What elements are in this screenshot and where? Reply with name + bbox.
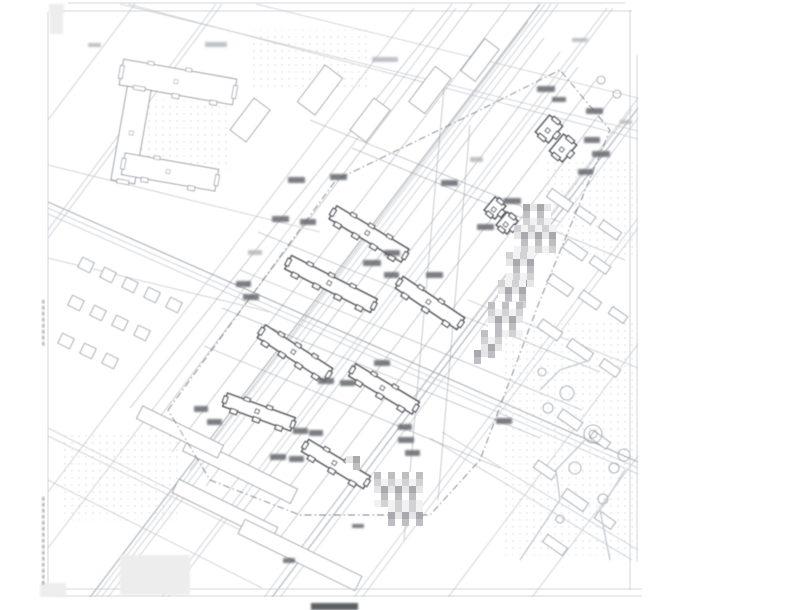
illegible-label-chip-light [372,57,398,62]
margin-micro-text [42,533,45,537]
margin-micro-text [42,521,45,525]
margin-micro-text [42,503,45,507]
illegible-label-chip [293,428,308,434]
illegible-label-chip [398,424,412,430]
illegible-label-chip [537,86,555,92]
illegible-label-chip [477,224,494,230]
margin-micro-text [42,342,45,346]
illegible-label-chip [384,272,399,278]
illegible-label-chip [384,250,400,256]
illegible-label-chip [578,169,593,175]
illegible-label-chip [441,180,458,186]
margin-micro-text [42,312,45,316]
margin-micro-text [42,324,45,328]
margin-micro-text [42,563,45,567]
site-plan-drawing [0,0,800,610]
screenshot-root [0,0,800,610]
illegible-label-chip [270,454,286,460]
illegible-label-chip-light [470,157,483,162]
margin-micro-text [42,581,45,585]
illegible-label-chip-light [248,250,262,255]
illegible-label-chip-light [572,38,588,42]
margin-micro-text [42,318,45,322]
illegible-label-chip [504,198,521,204]
illegible-label-chip [363,260,381,266]
illegible-label-chip [300,219,316,225]
illegible-label-chip [318,378,334,384]
margin-micro-text [42,336,45,340]
margin-micro-text [42,515,45,519]
margin-micro-text [42,575,45,579]
illegible-label-chip [496,418,512,424]
illegible-label-chip [236,281,251,287]
illegible-label-chip-light [88,43,101,47]
illegible-label-chip [194,406,208,412]
illegible-label-chip [352,524,364,528]
illegible-label-chip [330,174,347,180]
illegible-label-chip [340,380,355,386]
illegible-label-chip [592,151,610,157]
margin-micro-text [42,527,45,531]
margin-micro-text [42,539,45,543]
margin-micro-text [42,569,45,573]
illegible-label-chip [309,430,323,436]
illegible-label-chip [288,177,305,183]
margin-micro-text [42,551,45,555]
illegible-label-chip [586,108,603,114]
margin-micro-text [42,557,45,561]
illegible-label-chip [426,272,443,278]
margin-micro-text [42,306,45,310]
margin-micro-text [42,509,45,513]
drawing-title-chip [311,603,358,610]
margin-micro-text [42,300,45,304]
illegible-label-chip [405,450,420,456]
illegible-label-chip [243,294,259,300]
illegible-label-chip [207,419,222,425]
margin-micro-text [42,330,45,334]
margin-micro-text [42,497,45,501]
illegible-label-chip-light [205,42,227,47]
illegible-label-chip [289,456,304,462]
illegible-label-chip [283,558,295,563]
margin-micro-text [42,545,45,549]
illegible-label-chip [272,216,289,222]
illegible-label-chip [374,360,390,366]
illegible-label-chip [584,137,600,143]
illegible-label-chip [552,97,566,102]
illegible-label-chip [398,437,414,443]
